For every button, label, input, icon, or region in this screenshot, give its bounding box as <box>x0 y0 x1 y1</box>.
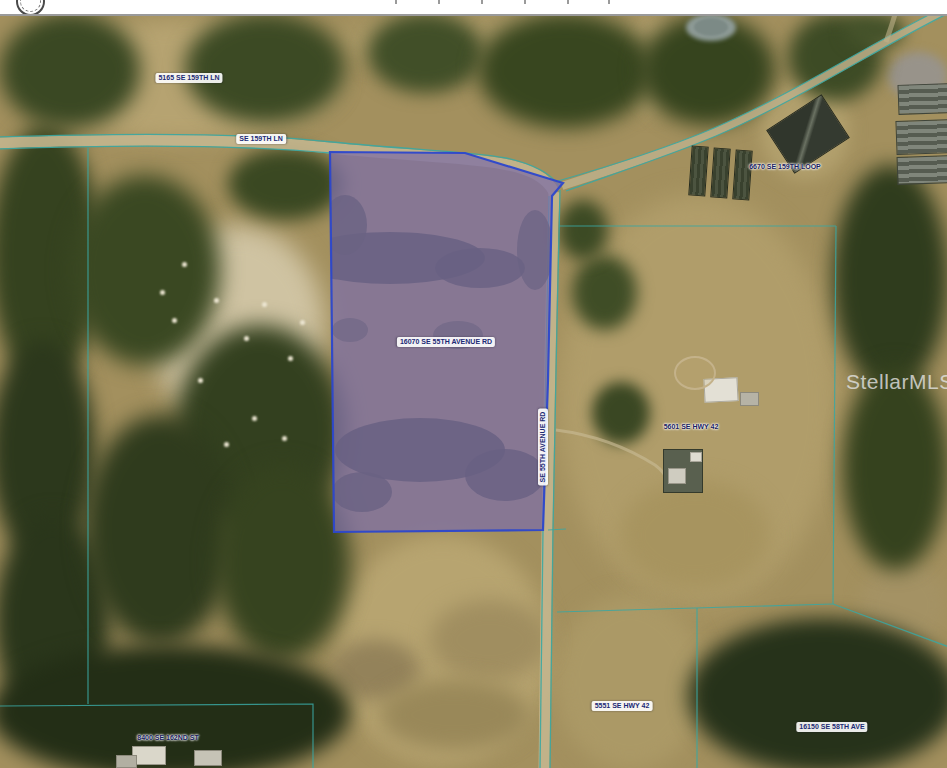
label-subject-parcel: 16070 SE 55TH AVENUE RD <box>397 337 495 347</box>
header-strip <box>0 0 947 16</box>
label-parcel-5601: 5601 SE HWY 42 <box>664 423 719 431</box>
label-parcel-5165: 5165 SE 159TH LN <box>155 73 222 83</box>
stellar-mls-watermark: StellarMLS <box>846 370 947 394</box>
label-parcel-6670: 6670 SE 159TH LOOP <box>749 163 821 171</box>
label-road-se-55th-avenue-rd: SE 55TH AVENUE RD <box>538 409 548 486</box>
label-road-se-159th-ln: SE 159TH LN <box>236 134 286 144</box>
map-labels: 5165 SE 159TH LN SE 159TH LN 6670 SE 159… <box>0 0 947 768</box>
county-seal-icon <box>16 0 45 16</box>
label-parcel-16150: 16150 SE 58TH AVE <box>796 722 867 732</box>
label-parcel-8400: 8400 SE 162ND ST <box>137 734 198 742</box>
aerial-map-screenshot: 5165 SE 159TH LN SE 159TH LN 6670 SE 159… <box>0 0 947 768</box>
label-parcel-5551: 5551 SE HWY 42 <box>592 701 653 711</box>
